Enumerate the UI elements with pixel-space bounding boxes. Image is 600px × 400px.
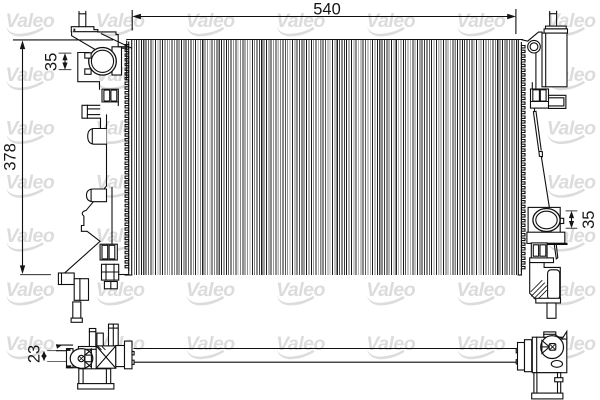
svg-text:378: 378 <box>2 143 20 171</box>
svg-text:540: 540 <box>313 1 341 19</box>
svg-text:35: 35 <box>580 211 598 229</box>
svg-text:35: 35 <box>43 53 61 71</box>
svg-text:23: 23 <box>25 345 43 363</box>
